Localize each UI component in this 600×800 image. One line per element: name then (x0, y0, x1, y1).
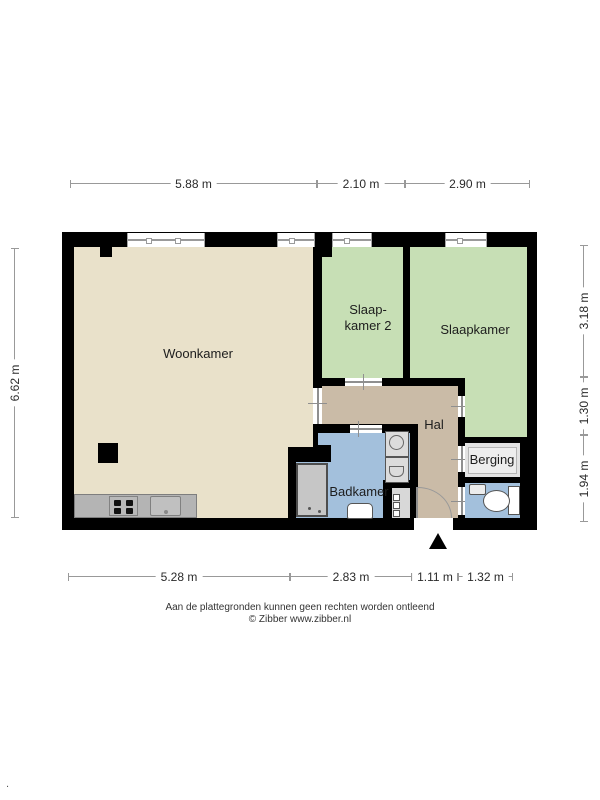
doorway-woonkamer-hal (313, 388, 322, 424)
room-label-text: Woonkamer (163, 346, 233, 361)
dim-bottom-woonkamer: 5.28 m (68, 576, 290, 577)
meter-icon (393, 502, 400, 509)
laundry-basket (389, 466, 404, 477)
dim-label: 2.90 m (444, 177, 491, 191)
window-pane-mark (344, 238, 350, 244)
room-label-text: Berging (470, 452, 515, 467)
dim-label: 5.88 m (170, 177, 217, 191)
dim-top-slaapkamer: 2.90 m (405, 183, 530, 184)
kitchen-sink-icon (150, 496, 181, 516)
burner (126, 508, 133, 514)
dim-bottom-berging: 1.32 m (458, 576, 513, 577)
dim-label: 2.10 m (338, 177, 385, 191)
doorway-tick (451, 459, 465, 460)
entrance-arrow-icon (429, 533, 447, 549)
dim-label: 6.62 m (8, 360, 22, 407)
washing-machine-icon (385, 431, 409, 457)
shower-icon (296, 463, 328, 517)
dim-top-slaapkamer2: 2.10 m (317, 183, 405, 184)
wall-column (100, 247, 112, 257)
window-pane-mark (146, 238, 152, 244)
doorway-tick (308, 403, 327, 404)
dim-label: 5.28 m (156, 570, 203, 584)
room-label-berging: Berging (470, 452, 515, 468)
meter-icon (393, 494, 400, 501)
window-pane-mark (457, 238, 463, 244)
washer-door (389, 435, 404, 450)
room-label-woonkamer: Woonkamer (163, 346, 233, 362)
doorway-tick (451, 501, 465, 502)
doorway-tick (363, 374, 364, 390)
wall-column (313, 247, 332, 257)
room-label-text: kamer 2 (345, 318, 392, 334)
window-pane-mark (175, 238, 181, 244)
dim-label: 1.32 m (462, 570, 509, 584)
doorway-badkamer (350, 425, 382, 433)
dim-label: 3.18 m (577, 288, 591, 335)
doorway-tick (358, 421, 359, 437)
dim-right-berging-wc: 1.94 m (583, 435, 584, 522)
toilet-icon (483, 490, 510, 512)
room-label-badkamer: Badkamer (329, 484, 388, 500)
shower-tap (308, 507, 311, 510)
dim-top-woonkamer: 5.88 m (70, 183, 317, 184)
room-label-slaapkamer2: Slaap- kamer 2 (345, 302, 392, 334)
room-woonkamer-floor (74, 247, 313, 518)
entrance-opening (414, 518, 453, 531)
corner-mark: . (6, 778, 9, 790)
room-slaapkamer-floor (410, 247, 527, 378)
free-column (98, 443, 118, 463)
window-icon (127, 233, 205, 247)
shower-tap (318, 510, 321, 513)
footer-copyright: © Zibber www.zibber.nl (0, 614, 600, 625)
footer-disclaimer: Aan de plattegronden kunnen geen rechten… (0, 602, 600, 613)
dim-label: 1.30 m (577, 383, 591, 430)
floor-plan-page: 5.88 m 2.10 m 2.90 m 6.62 m 3.18 m 1.30 … (0, 0, 600, 800)
doorway-tick (451, 406, 465, 407)
room-label-text: Hal (424, 417, 444, 432)
dim-right-hal: 1.30 m (583, 377, 584, 435)
dim-bottom-entree: 1.11 m (412, 576, 458, 577)
room-label-hal: Hal (424, 417, 444, 433)
drain (164, 510, 168, 514)
dim-left-total: 6.62 m (14, 248, 15, 518)
dim-bottom-badkamer: 2.83 m (290, 576, 412, 577)
room-label-slaapkamer: Slaapkamer (440, 322, 509, 338)
room-slaapkamer-floor-lower (465, 378, 527, 437)
meter-icon (393, 510, 400, 517)
burner (114, 500, 121, 506)
room-label-text: Badkamer (329, 484, 388, 499)
dim-label: 1.11 m (412, 570, 458, 584)
dim-right-bedrooms: 3.18 m (583, 245, 584, 377)
room-label-text: Slaapkamer (440, 322, 509, 337)
bath-sink-icon (347, 503, 373, 519)
room-label-text: Slaap- (345, 302, 392, 318)
dryer-icon (385, 457, 409, 483)
burner (114, 508, 121, 514)
window-icon (445, 233, 487, 247)
window-pane-mark (289, 238, 295, 244)
stove-icon (109, 496, 138, 516)
window-icon (332, 233, 372, 247)
badkamer-corner-wall (313, 445, 331, 462)
burner (126, 500, 133, 506)
dim-label: 1.94 m (577, 455, 591, 502)
window-icon (277, 233, 315, 247)
wc-hand-sink-icon (469, 484, 486, 495)
dim-label: 2.83 m (328, 570, 375, 584)
